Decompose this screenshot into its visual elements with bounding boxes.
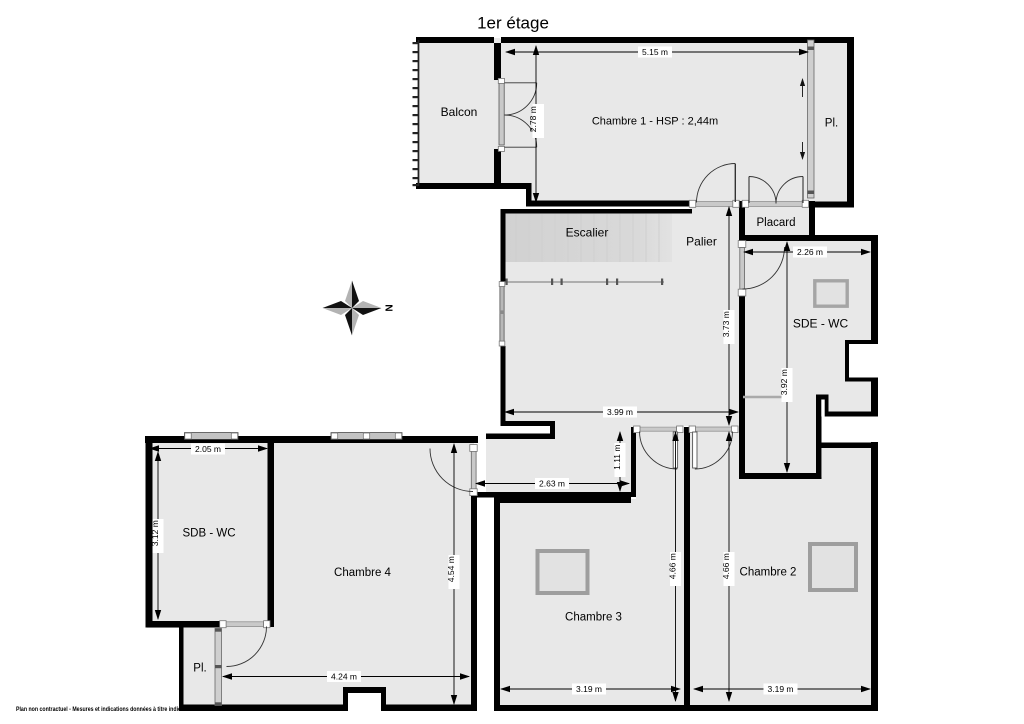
svg-text:5.15 m: 5.15 m xyxy=(642,47,668,57)
svg-text:3.73 m: 3.73 m xyxy=(721,311,731,337)
svg-text:Escalier: Escalier xyxy=(566,226,609,240)
svg-text:Chambre 4: Chambre 4 xyxy=(334,567,391,579)
svg-text:1.11 m: 1.11 m xyxy=(612,445,622,470)
svg-text:3.99 m: 3.99 m xyxy=(607,407,633,417)
svg-text:4.66 m: 4.66 m xyxy=(721,553,731,579)
svg-text:Pl.: Pl. xyxy=(193,663,206,675)
svg-text:Plan non contractuel - Mesures: Plan non contractuel - Mesures et indica… xyxy=(16,707,189,714)
svg-text:3.92 m: 3.92 m xyxy=(779,369,789,395)
svg-text:Chambre 2: Chambre 2 xyxy=(740,567,797,579)
svg-text:Pl.: Pl. xyxy=(825,118,838,130)
svg-text:Palier: Palier xyxy=(686,234,717,248)
svg-text:1er étage: 1er étage xyxy=(477,14,549,33)
svg-text:2.63 m: 2.63 m xyxy=(539,479,565,489)
svg-text:3.19 m: 3.19 m xyxy=(576,684,602,694)
svg-text:SDE - WC: SDE - WC xyxy=(793,317,849,331)
svg-text:SDB - WC: SDB - WC xyxy=(182,528,235,540)
svg-text:4.24 m: 4.24 m xyxy=(331,672,357,682)
svg-text:Placard: Placard xyxy=(757,217,796,229)
svg-text:2.26 m: 2.26 m xyxy=(797,247,823,257)
svg-text:Chambre 1 - HSP : 2,44m: Chambre 1 - HSP : 2,44m xyxy=(592,116,718,128)
svg-text:Balcon: Balcon xyxy=(441,105,478,119)
svg-text:N: N xyxy=(383,304,394,311)
svg-text:4.54 m: 4.54 m xyxy=(446,556,456,582)
svg-text:2.78 m: 2.78 m xyxy=(528,106,538,132)
svg-text:3.19 m: 3.19 m xyxy=(768,684,794,694)
svg-text:4.66 m: 4.66 m xyxy=(668,553,678,579)
svg-text:Chambre 3: Chambre 3 xyxy=(565,612,622,624)
svg-text:2.05 m: 2.05 m xyxy=(195,444,221,454)
svg-text:3.12 m: 3.12 m xyxy=(150,520,160,546)
